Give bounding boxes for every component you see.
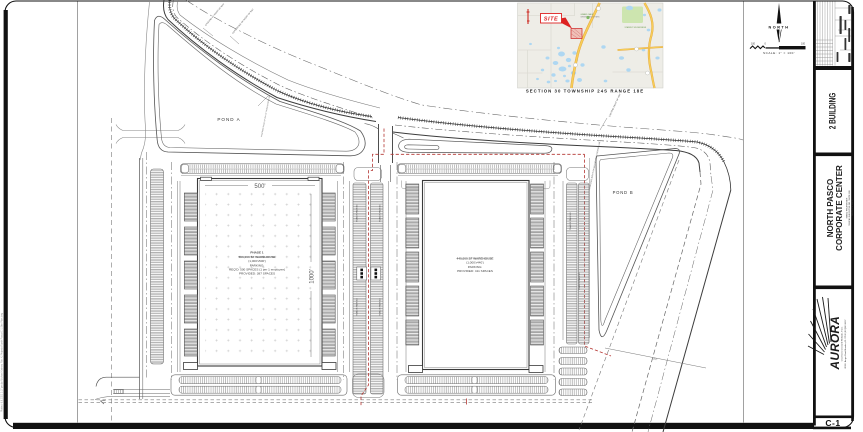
- svg-text:2 BUILDING: 2 BUILDING: [827, 93, 838, 130]
- svg-text:SECTION 30 TOWNSHIP 24S RANGE: SECTION 30 TOWNSHIP 24S RANGE 18E: [526, 89, 644, 94]
- svg-text:(1,000'x440'): (1,000'x440'): [466, 261, 484, 265]
- svg-text:SITE: SITE: [544, 17, 558, 23]
- svg-text:PARKING:: PARKING:: [250, 263, 265, 267]
- svg-text:PROVIDED: 411 SPACES: PROVIDED: 411 SPACES: [457, 269, 493, 273]
- svg-text:100: 100: [801, 43, 806, 46]
- svg-text:PARKING:: PARKING:: [468, 265, 483, 269]
- svg-text:5550 W. EXECUTIVE DR. SUITE 30: 5550 W. EXECUTIVE DR. SUITE 300: [849, 190, 851, 226]
- svg-text:CORPORATE CENTER: CORPORATE CENTER: [835, 165, 844, 251]
- svg-text:PHASE 1: PHASE 1: [250, 251, 263, 255]
- svg-text:NORTH: NORTH: [769, 26, 790, 30]
- svg-text:POND B: POND B: [613, 190, 634, 195]
- svg-text:AURORA: AURORA: [828, 316, 842, 371]
- svg-text:REQ'D: 500 SPACES (1 per 1 emp: REQ'D: 500 SPACES (1 per 1 employee): [229, 268, 285, 272]
- svg-text:Plotted: 6.8.2022 2:17 pm by M: Plotted: 6.8.2022 2:17 pm by Michael Kei…: [0, 312, 3, 412]
- svg-text:SCALE: 1" = 100': SCALE: 1" = 100': [763, 51, 795, 55]
- svg-text:POND A: POND A: [217, 117, 240, 122]
- svg-text:NORTH PASCO: NORTH PASCO: [826, 179, 835, 238]
- svg-text:1000': 1000': [310, 269, 316, 284]
- svg-text:100: 100: [751, 43, 756, 46]
- svg-text:802 E. Berger Road Brandon,: 802 E. Berger Road Brandon, FL 33510 (81…: [845, 319, 847, 369]
- svg-text:HIRED PROPERTIES: HIRED PROPERTIES: [847, 197, 849, 218]
- svg-text:PROVIDED: 387 SPACES: PROVIDED: 387 SPACES: [239, 272, 275, 276]
- svg-text:500': 500': [254, 184, 265, 190]
- svg-text:(1,000'x500'): (1,000'x500'): [248, 259, 266, 263]
- svg-text:440,000 SF WAREHOUSE: 440,000 SF WAREHOUSE: [457, 257, 494, 261]
- svg-text:C-1: C-1: [825, 418, 840, 428]
- svg-text:500,000 SF WAREHOUSE: 500,000 SF WAREHOUSE: [239, 255, 276, 259]
